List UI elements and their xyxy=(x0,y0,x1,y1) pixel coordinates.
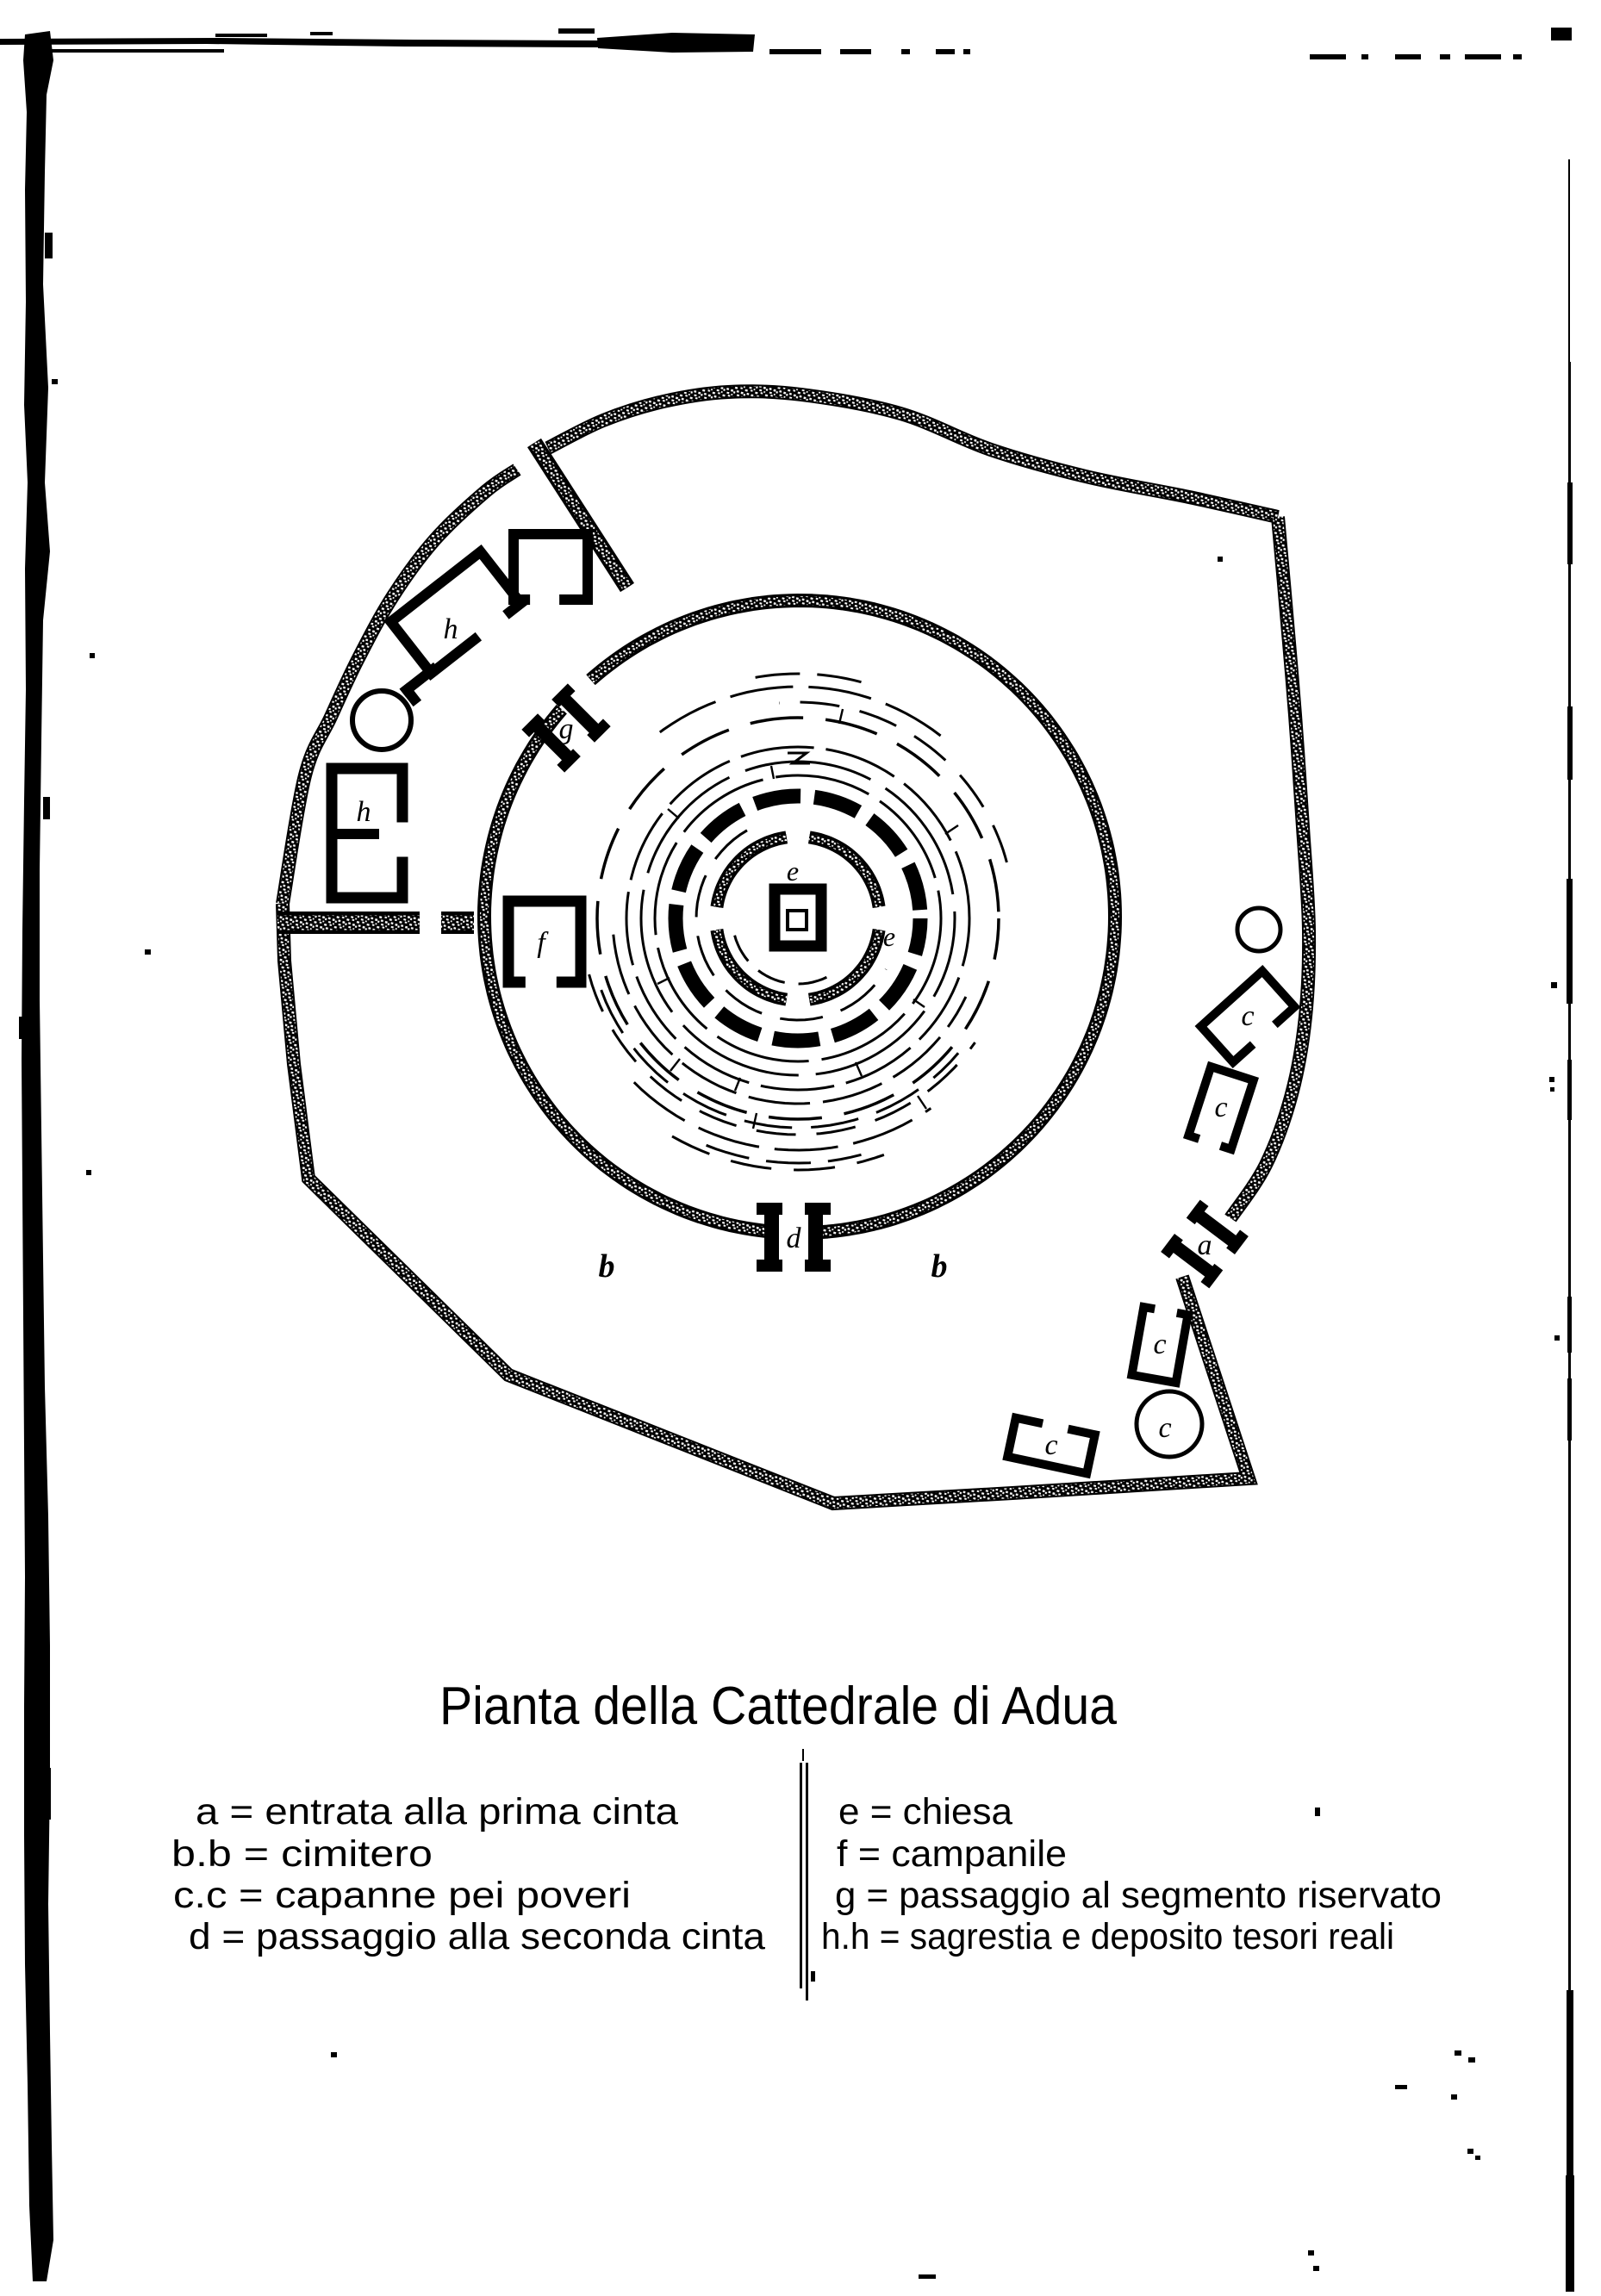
svg-text:b: b xyxy=(599,1248,615,1285)
svg-text:g: g xyxy=(559,713,574,745)
svg-text:e: e xyxy=(883,921,895,952)
svg-text:d: d xyxy=(787,1223,802,1254)
svg-text:b.b = cimitero: b.b = cimitero xyxy=(171,1833,433,1875)
svg-text:c: c xyxy=(1214,1092,1227,1123)
svg-text:h: h xyxy=(444,613,458,645)
svg-text:e = chiesa: e = chiesa xyxy=(838,1791,1012,1832)
svg-text:c: c xyxy=(1044,1429,1057,1461)
svg-text:d = passaggio alla seconda cin: d = passaggio alla seconda cinta xyxy=(189,1916,765,1957)
svg-text:a = entrata alla prima cinta: a = entrata alla prima cinta xyxy=(196,1791,678,1832)
svg-text:Pianta della Cattedrale di Adu: Pianta della Cattedrale di Adua xyxy=(439,1677,1117,1736)
svg-text:h: h xyxy=(357,796,371,828)
svg-text:c: c xyxy=(1241,1000,1254,1032)
svg-text:e: e xyxy=(787,856,799,887)
svg-text:a: a xyxy=(1198,1229,1212,1261)
svg-text:g = passaggio al segmento rise: g = passaggio al segmento riservato xyxy=(835,1875,1442,1916)
svg-text:c: c xyxy=(1158,1412,1171,1444)
svg-text:c.c = capanne pei poveri: c.c = capanne pei poveri xyxy=(173,1875,631,1916)
svg-text:b: b xyxy=(931,1248,948,1285)
svg-text:c: c xyxy=(1153,1328,1166,1360)
svg-text:h.h = sagrestia e deposito tes: h.h = sagrestia e deposito tesori reali xyxy=(821,1916,1394,1957)
svg-text:f = campanile: f = campanile xyxy=(837,1833,1067,1875)
